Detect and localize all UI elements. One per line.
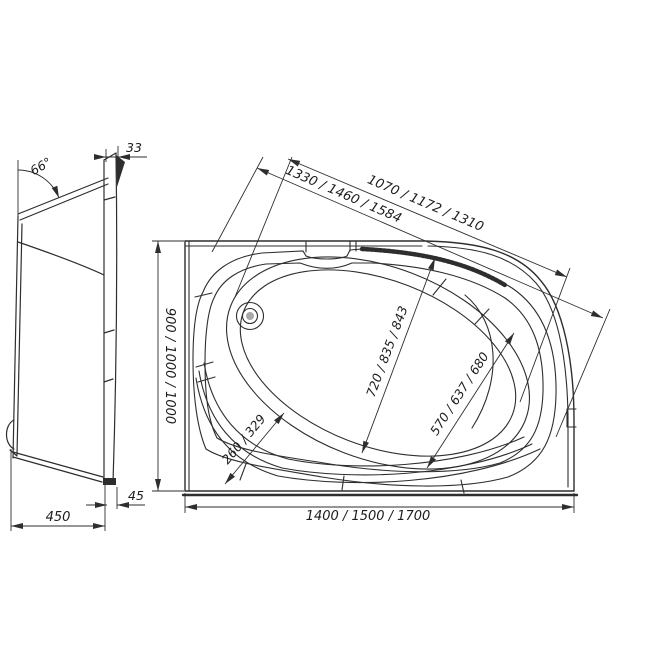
dim-bowl-length: 720 / 835 / 843	[359, 257, 438, 454]
rim-thickness-label: 33	[126, 140, 142, 155]
dim-depth: 450	[11, 449, 105, 531]
arrow-icon	[424, 456, 436, 469]
dim-width: 900 / 1000 / 1000	[152, 241, 184, 491]
arrow-icon	[562, 504, 574, 510]
width-label: 900 / 1000 / 1000	[162, 308, 177, 424]
dim-rim-angle: 66°	[18, 154, 62, 216]
depth-label: 450	[46, 510, 71, 525]
arrow-icon	[155, 241, 161, 253]
side-view-dimensions: 66° 33 450 45	[11, 140, 147, 531]
arrow-icon	[94, 154, 106, 160]
base-offset-label: 45	[128, 488, 144, 503]
foot-pad	[103, 478, 116, 485]
arrow-icon	[155, 479, 161, 491]
rim-section-wedge	[116, 155, 125, 187]
arrow-icon	[505, 331, 517, 344]
dim-inner-diagonal: 1070 / 1172 / 1310	[235, 156, 570, 402]
arrow-icon	[591, 310, 604, 320]
dim-length: 1400 / 1500 / 1700	[185, 493, 574, 524]
drawing-canvas: 66° 33 450 45	[0, 0, 666, 645]
drain	[237, 303, 264, 330]
arrow-icon	[93, 523, 105, 529]
arrow-icon	[11, 523, 23, 529]
length-label: 1400 / 1500 / 1700	[306, 509, 431, 524]
dim-base-offset: 45	[86, 487, 145, 509]
side-rim-edge	[18, 178, 108, 214]
plan-view-dimensions: 900 / 1000 / 1000 1400 / 1500 / 1700 133…	[152, 156, 610, 524]
bowl-length-label: 720 / 835 / 843	[363, 304, 411, 399]
bowl-width-label: 570 / 637 / 680	[427, 349, 492, 438]
side-view	[7, 153, 126, 485]
arrow-icon	[185, 504, 197, 510]
apron-band-label: 260 / 329	[219, 411, 269, 467]
side-inner-profile	[18, 242, 104, 275]
bathtub-technical-drawing: 66° 33 450 45	[0, 0, 666, 645]
rim-angle-label: 66°	[27, 154, 54, 178]
